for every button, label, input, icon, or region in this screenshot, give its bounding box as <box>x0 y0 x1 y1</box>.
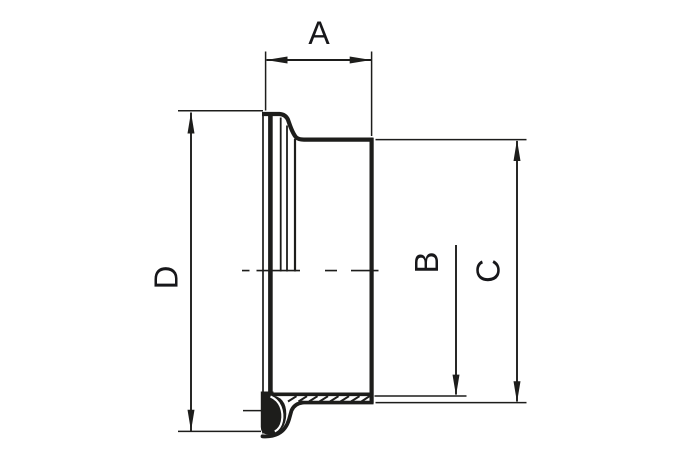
technical-drawing-canvas: A D B C <box>0 0 690 466</box>
dim-d-label: D <box>148 266 185 290</box>
part-top-profile <box>262 114 374 140</box>
section-hatching <box>288 396 370 401</box>
dimension-b: B <box>375 245 467 396</box>
dim-a-arrow-right <box>350 57 372 64</box>
dimension-c: C <box>376 140 527 403</box>
dim-b-label: B <box>408 251 445 273</box>
dim-b-arrow-down <box>453 375 460 396</box>
dim-c-label: C <box>470 259 507 283</box>
dim-d-arrow-up <box>188 112 195 133</box>
drawing-page: A D B C <box>0 0 690 466</box>
dim-a-label: A <box>308 15 330 51</box>
dim-c-arrow-down <box>514 381 521 402</box>
dim-a-arrow-left <box>266 57 288 64</box>
dim-c-arrow-up <box>514 140 521 161</box>
part-outline <box>242 113 379 437</box>
dim-d-arrow-down <box>188 410 195 431</box>
